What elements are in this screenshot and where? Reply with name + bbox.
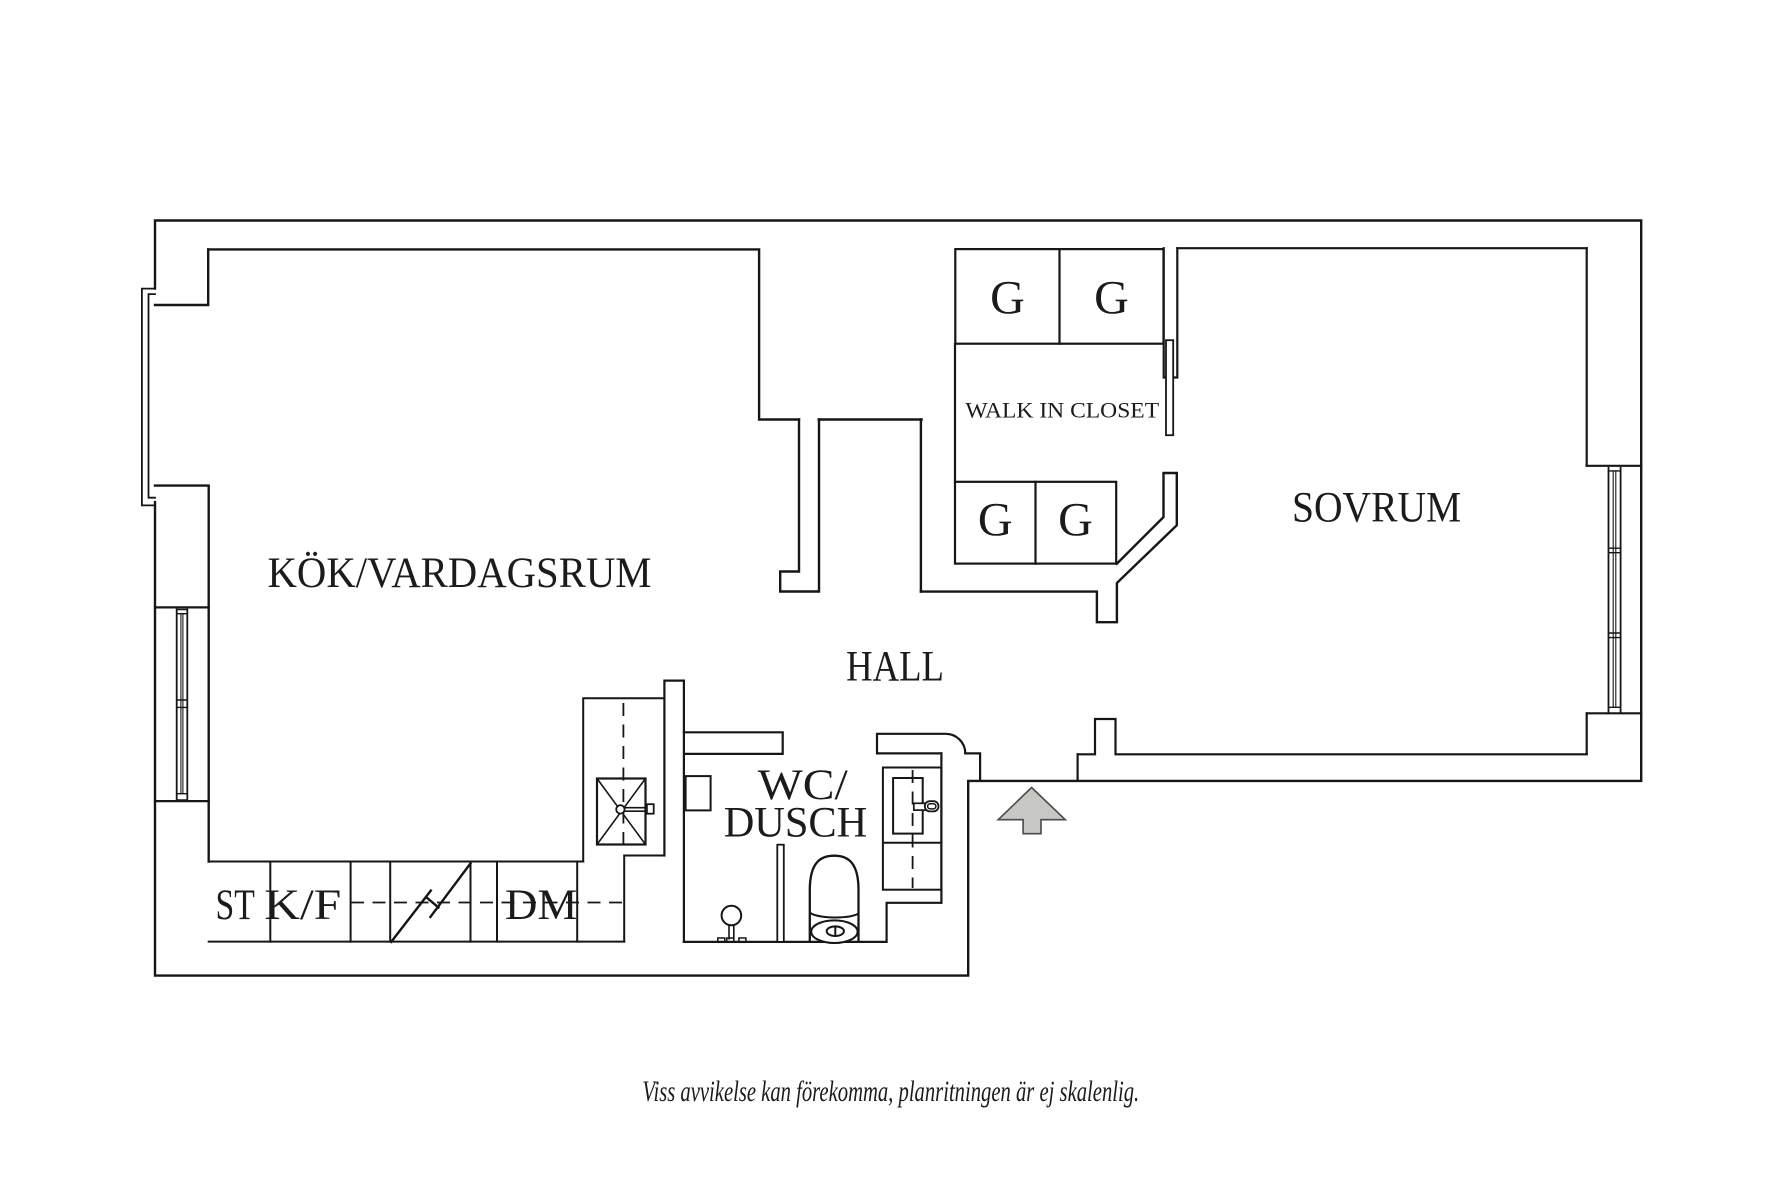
svg-text:G: G [1094,272,1129,325]
svg-text:G: G [978,494,1013,547]
svg-text:HALL: HALL [846,643,944,690]
svg-text:KÖK/VARDAGSRUM: KÖK/VARDAGSRUM [268,550,652,597]
svg-text:G: G [990,272,1025,325]
svg-text:DUSCH: DUSCH [724,800,868,847]
svg-text:WALK IN CLOSET: WALK IN CLOSET [965,398,1159,423]
svg-text:ST: ST [216,882,255,929]
svg-text:G: G [1058,494,1093,547]
svg-text:SOVRUM: SOVRUM [1292,485,1461,532]
svg-text:Viss avvikelse kan förekomma,: Viss avvikelse kan förekomma, planritnin… [642,1075,1139,1108]
svg-text:K/F: K/F [264,882,341,929]
svg-text:DM: DM [505,882,577,929]
